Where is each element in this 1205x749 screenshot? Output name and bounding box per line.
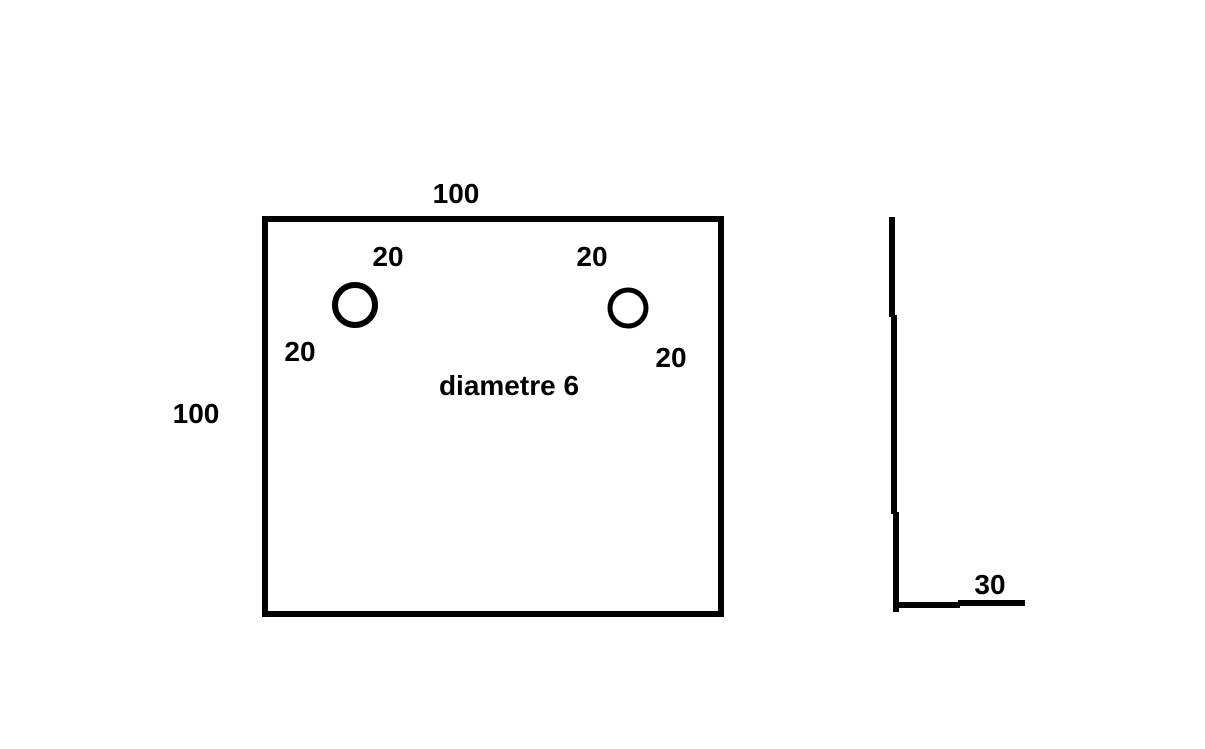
right-hole-top-offset-dimension: 20: [576, 241, 607, 272]
left-hole-top-offset-dimension: 20: [372, 241, 403, 272]
drawing-canvas: 100 100 20 20 20 20 diametre 6 30: [0, 0, 1205, 749]
flange-width-dimension: 30: [974, 569, 1005, 600]
right-hole-side-offset-dimension: 20: [655, 342, 686, 373]
left-hole-side-offset-dimension: 20: [284, 336, 315, 367]
left-hole: [335, 285, 375, 325]
technical-drawing: 100 100 20 20 20 20 diametre 6 30: [0, 0, 1205, 749]
plate-width-dimension: 100: [433, 178, 480, 209]
plate-height-dimension: 100: [173, 398, 220, 429]
right-hole: [610, 290, 646, 326]
hole-diameter-note: diametre 6: [439, 370, 579, 401]
plate-outline: [265, 219, 721, 614]
